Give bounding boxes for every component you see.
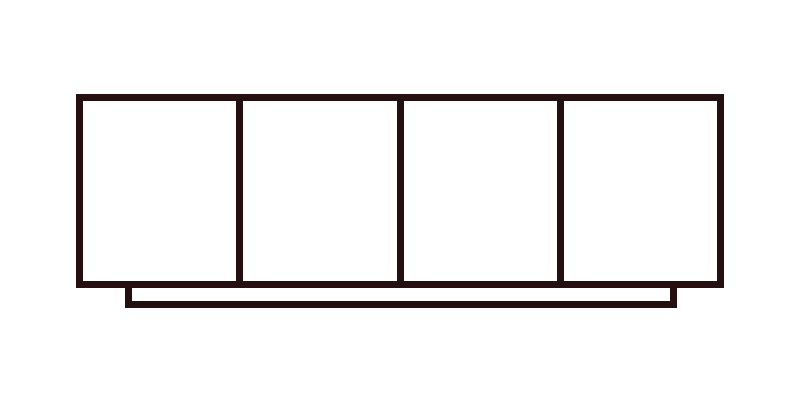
cabinet-door [243,101,396,281]
door-divider [236,101,243,281]
cabinet-plinth [125,288,677,308]
cabinet-body [76,94,724,288]
sideboard-diagram [0,0,800,400]
door-divider [397,101,404,281]
cabinet-door [83,101,236,281]
door-divider [557,101,564,281]
cabinet-door [564,101,717,281]
cabinet-door [404,101,557,281]
